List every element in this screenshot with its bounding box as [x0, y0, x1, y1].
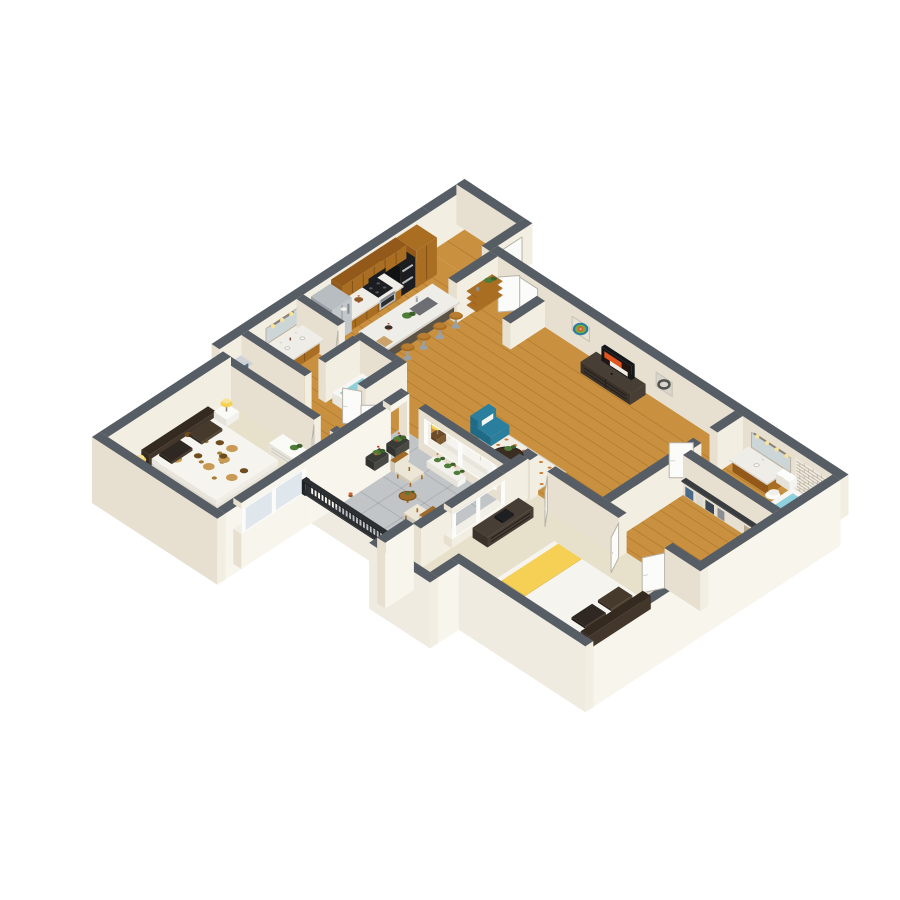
bar-stool-seat	[450, 312, 461, 318]
patio-pot-flowers	[349, 492, 353, 495]
bed1-floral-pattern	[226, 474, 238, 481]
wall-bedroom2-north	[700, 566, 708, 611]
bed1-floral-pattern	[217, 452, 222, 455]
planter-foliage	[379, 449, 385, 453]
rug-dot	[539, 461, 543, 463]
wall-exterior-nook-east	[438, 564, 459, 644]
food	[358, 301, 360, 303]
bar-stool-seat	[418, 333, 429, 339]
bath2-sconce-bulb	[775, 447, 779, 451]
toilet2-seat	[768, 489, 779, 495]
bath1-sconce-bulb	[280, 318, 284, 322]
wall-entry-half	[502, 318, 510, 349]
bath1-faucet	[280, 342, 282, 343]
bath1-sconce-bulb	[271, 324, 275, 328]
bath2-sconce-bulb	[784, 454, 788, 458]
planter-flower	[377, 446, 379, 448]
planter-flower	[398, 432, 400, 434]
planter-flower	[437, 453, 439, 455]
bath1-sink	[300, 337, 305, 340]
veggies	[388, 329, 390, 330]
bath2-sconce-bulb	[755, 434, 759, 438]
wall-tub-nook	[318, 358, 325, 403]
wall-exterior-top-right	[841, 475, 849, 520]
entry-shelf-vase	[476, 287, 479, 291]
vanity-bottles	[290, 337, 292, 340]
tv	[631, 364, 634, 380]
apartment-3d-floorplan	[0, 0, 900, 900]
bed1-floral-pattern	[203, 463, 215, 470]
bath1-sink	[285, 347, 290, 350]
patio-table-plant	[411, 491, 415, 493]
entry-shelf-plant	[491, 277, 497, 281]
window-frame	[476, 496, 480, 524]
rug-dot	[548, 467, 552, 469]
planter-flower	[454, 465, 456, 467]
bed1-floral-pattern	[199, 460, 204, 463]
window-planter-plants	[440, 457, 445, 460]
veggies	[388, 323, 390, 324]
bath1-sconce-bulb	[289, 312, 293, 316]
rug-dot	[505, 439, 509, 441]
window-frame	[458, 441, 463, 469]
wall-exterior-bedroom2-south	[585, 641, 593, 712]
food	[358, 295, 360, 297]
window-planter-plants	[460, 470, 465, 473]
lamp-glow	[222, 399, 230, 404]
wall-bedroom2-north	[530, 455, 538, 500]
island-plant	[409, 312, 416, 317]
rug-dot	[540, 483, 544, 485]
burner	[369, 287, 373, 289]
window-frame	[501, 480, 505, 508]
burner	[375, 291, 379, 293]
patio-table-plant	[405, 492, 410, 495]
rug-dot	[496, 444, 500, 446]
bar-stool-seat	[402, 343, 413, 349]
wall-exterior-nook-south	[430, 577, 438, 648]
bed1-floral-pattern	[226, 445, 238, 452]
bath2-sink	[754, 464, 759, 467]
island-faucet	[415, 296, 418, 298]
bath1-faucet	[295, 332, 297, 333]
bath2-faucet	[762, 459, 764, 461]
burner	[383, 287, 387, 289]
wall-exterior-nook-west	[377, 538, 385, 609]
bar-stool-seat	[434, 322, 445, 328]
window-sill-wall	[233, 529, 241, 569]
planter-flower	[395, 440, 397, 442]
window-frame	[272, 487, 276, 515]
render-shape	[545, 506, 546, 510]
planter-flower	[375, 453, 377, 455]
planter-foliage	[400, 435, 406, 439]
wall-bedroom2-north	[619, 513, 627, 558]
window-planter-plants	[454, 471, 461, 475]
window-planter-plants	[434, 458, 441, 462]
window-frame	[424, 418, 428, 446]
coffee-table-plant	[511, 445, 517, 449]
rug-dot	[539, 472, 543, 474]
dresser-plant	[296, 444, 302, 448]
counter-bowl	[341, 307, 347, 311]
bath2-sconce-bulb	[765, 441, 769, 445]
bed1-floral-pattern	[194, 453, 202, 458]
bed1-floral-pattern	[216, 440, 224, 445]
burner	[377, 282, 381, 284]
wall-balcony-left	[407, 394, 409, 462]
wall-exterior-bedroom1-south	[217, 514, 225, 585]
window-frame	[242, 507, 246, 535]
closet2-door-leaf	[642, 553, 664, 593]
bed1-floral-pattern	[212, 476, 217, 479]
bed1-floral-pattern	[240, 468, 248, 473]
window-frame	[452, 512, 456, 540]
